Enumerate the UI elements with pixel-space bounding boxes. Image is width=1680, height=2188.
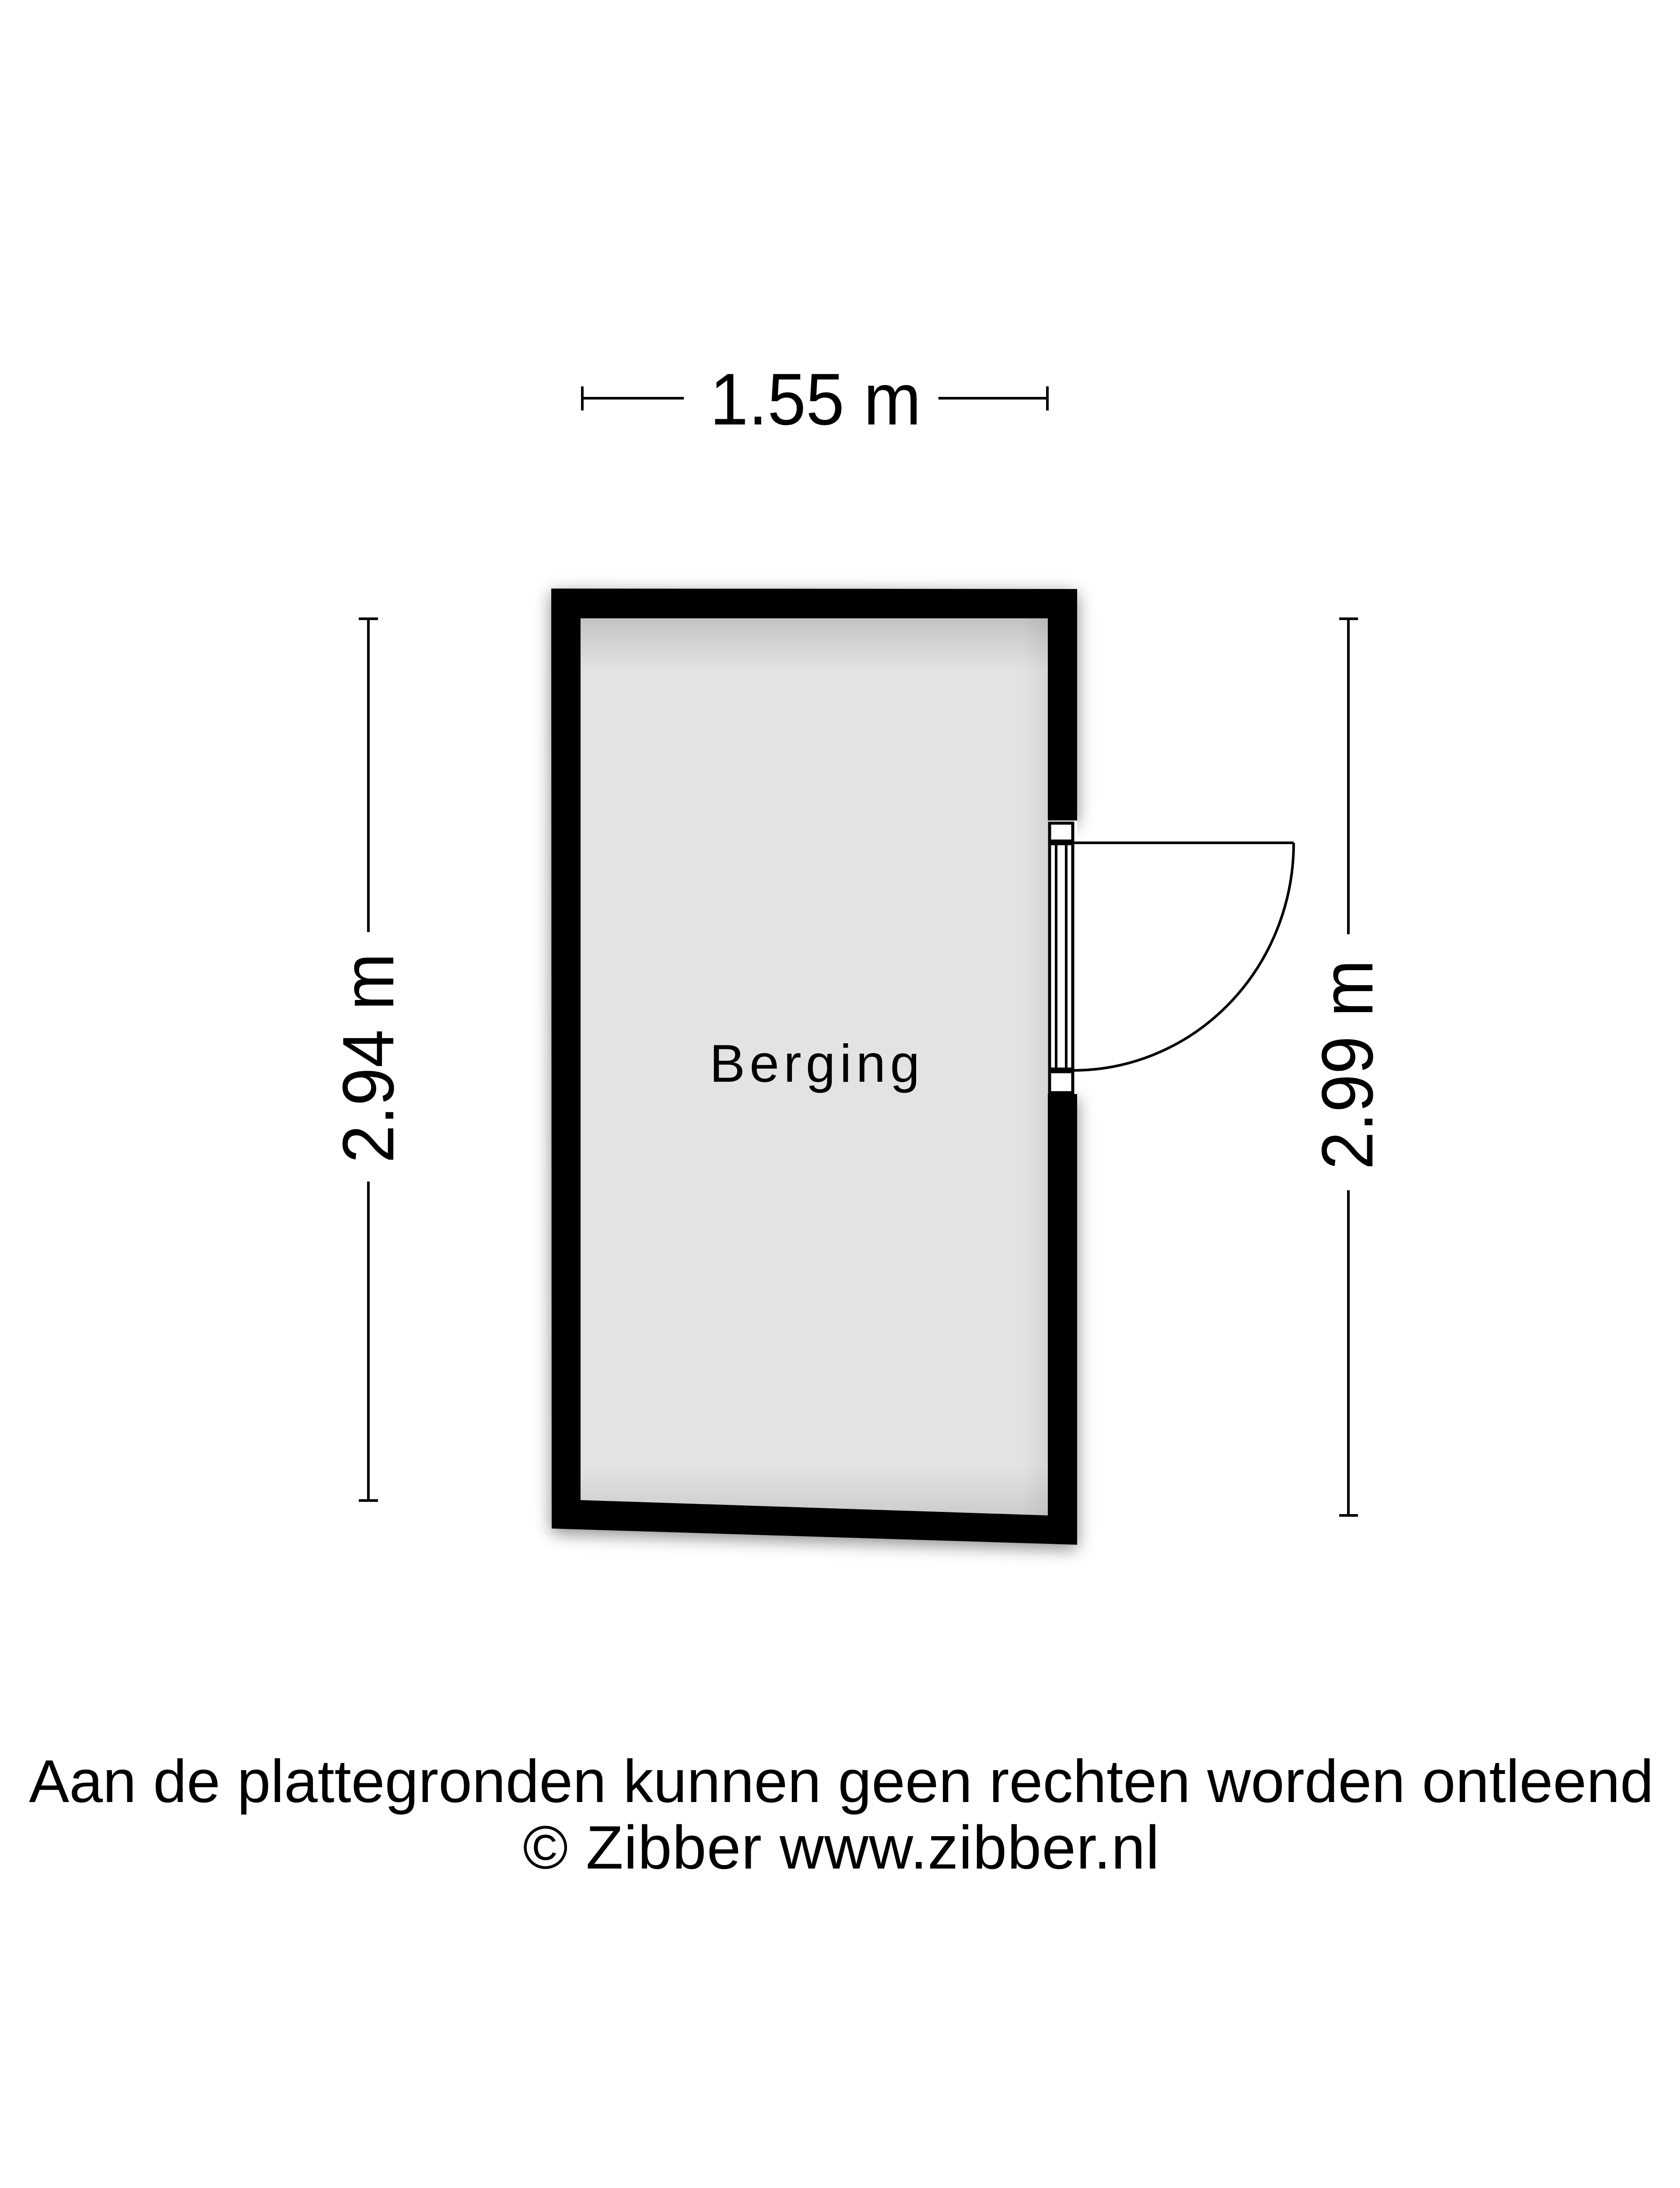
- svg-text:2.94 m: 2.94 m: [328, 953, 409, 1163]
- svg-text:© Zibber www.zibber.nl: © Zibber www.zibber.nl: [523, 1813, 1160, 1882]
- svg-text:1.55 m: 1.55 m: [710, 359, 921, 440]
- svg-text:Berging: Berging: [710, 1034, 924, 1093]
- svg-text:Aan de plattegronden kunnen ge: Aan de plattegronden kunnen geen rechten…: [29, 1748, 1654, 1815]
- svg-text:2.99 m: 2.99 m: [1307, 960, 1388, 1170]
